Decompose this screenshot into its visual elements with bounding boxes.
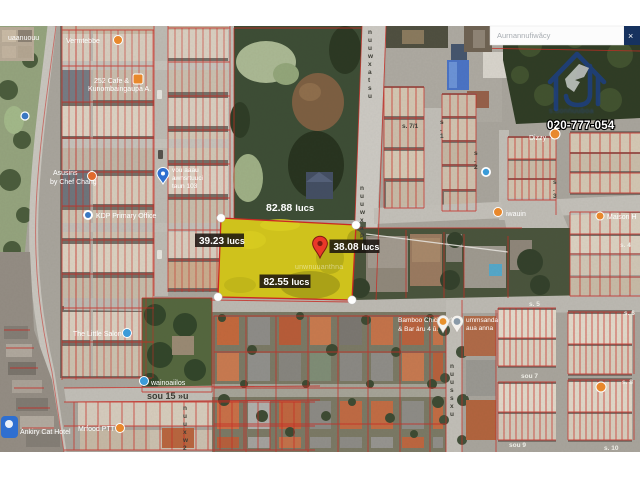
svg-text:aua anna: aua anna: [466, 325, 493, 332]
svg-text:38.08 lucs: 38.08 lucs: [334, 242, 380, 253]
svg-text:awnsrtuuci: awnsrtuuci: [172, 175, 203, 182]
svg-text:Vermtebbe: Vermtebbe: [66, 38, 100, 45]
svg-text:Asusins: Asusins: [53, 170, 78, 177]
svg-text:ummsanda: ummsanda: [466, 317, 499, 324]
svg-text:sou 9: sou 9: [509, 442, 526, 449]
svg-text:s. 4: s. 4: [620, 242, 631, 249]
svg-text:s. 10: s. 10: [604, 445, 619, 452]
svg-text:The Little Salon: The Little Salon: [73, 331, 122, 338]
svg-text:Mrfood PTT: Mrfood PTT: [78, 426, 116, 433]
svg-text:×: ×: [628, 31, 633, 41]
svg-text:sou 15 »u: sou 15 »u: [147, 391, 189, 401]
svg-text:KDP Primary Office: KDP Primary Office: [96, 213, 157, 220]
svg-text:sou 7: sou 7: [521, 373, 538, 380]
svg-text:Kunombaingaupa A.: Kunombaingaupa A.: [88, 86, 151, 93]
svg-text:iwauin: iwauin: [506, 211, 526, 218]
svg-text:Ankiry Cat Hotel: Ankiry Cat Hotel: [20, 429, 71, 436]
svg-text:252 Cafe &: 252 Cafe &: [94, 78, 129, 85]
svg-text:Maison H: Maison H: [607, 214, 637, 221]
svg-text:& Bar âru 4 ŭ.: & Bar âru 4 ŭ.: [398, 326, 438, 333]
svg-text:39.23 lucs: 39.23 lucs: [199, 236, 245, 247]
svg-text:s. 6: s. 6: [624, 310, 635, 317]
svg-text:vou aaau: vou aaau: [172, 167, 199, 174]
svg-text:82.88 lucs: 82.88 lucs: [266, 202, 314, 214]
svg-text:s:uonńuuboa: s:uonńuuboa: [549, 108, 594, 115]
svg-text:Aurnannufiwăcy: Aurnannufiwăcy: [497, 31, 551, 40]
svg-text:s. 7/1: s. 7/1: [402, 123, 419, 130]
svg-text:nuussxu: nuussxu: [450, 363, 454, 418]
svg-text:taun 103: taun 103: [172, 183, 198, 190]
svg-text:s. 5: s. 5: [529, 301, 540, 308]
svg-text:82.55 lucs: 82.55 lucs: [264, 277, 310, 288]
svg-text:Dizzy: Dizzy: [529, 135, 547, 142]
svg-text:wainoaiilos: wainoaiilos: [150, 380, 186, 387]
svg-text:s. 8: s. 8: [622, 379, 633, 386]
svg-text:uaanuouu: uaanuouu: [8, 35, 39, 42]
svg-text:unwnuuanthna: unwnuuanthna: [295, 264, 343, 271]
